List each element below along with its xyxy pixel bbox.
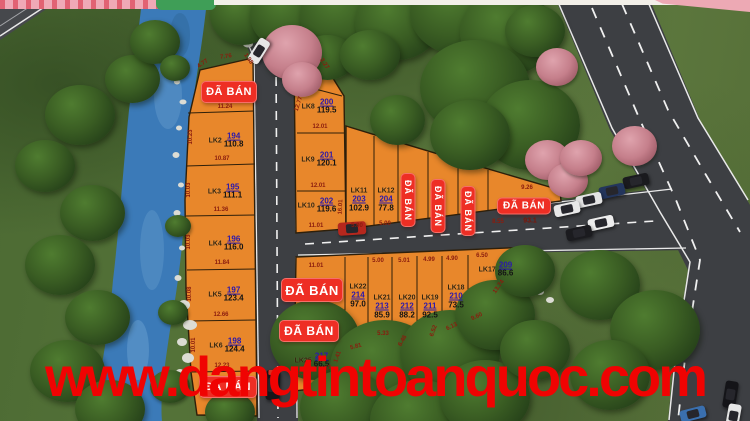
tree bbox=[25, 235, 95, 295]
dimension-label: 10.87 bbox=[214, 156, 229, 162]
sold-badge-strip-1: ĐÃ BÁN bbox=[401, 173, 416, 227]
plot-label-lk5: LK5 197123.4 bbox=[208, 287, 243, 304]
plot-label-lk19: LK1921192.5 bbox=[421, 295, 438, 320]
dimension-label: 11.24 bbox=[218, 104, 233, 110]
dimension-label: 8.55 bbox=[492, 219, 504, 225]
plot-label-lk21: LK2121385.9 bbox=[373, 295, 390, 320]
sold-badge-lower-1: ĐÃ BÁN bbox=[281, 278, 343, 302]
dimension-label: 10.03 bbox=[186, 182, 192, 197]
dimension-label: 93.1 bbox=[523, 218, 537, 225]
top-strip-pink bbox=[0, 0, 158, 9]
dimension-label: 12.01 bbox=[312, 124, 327, 130]
pink-tree bbox=[560, 140, 602, 176]
dimension-label: 5.00 bbox=[372, 258, 384, 264]
sold-badge-lk1: ĐÃ BÁN bbox=[201, 81, 257, 103]
plot-label-lk9: LK9 201120.1 bbox=[301, 152, 336, 169]
land-plot-map: ĐÃ BÁN ĐÃ BÁN ĐÃ BÁN ĐÃ BÁN ĐÃ BÁN ĐÃ BÁ… bbox=[0, 0, 750, 421]
bush bbox=[160, 55, 190, 81]
tree bbox=[370, 95, 425, 145]
dimension-label: 5.33 bbox=[377, 331, 389, 337]
dimension-label: 11.01 bbox=[309, 263, 324, 269]
dimension-label: 4.90 bbox=[446, 256, 458, 262]
sold-badge-lk16: ĐÃ BÁN bbox=[497, 198, 551, 215]
plot-label-lk8: LK8 200119.5 bbox=[302, 99, 337, 116]
bush bbox=[158, 300, 188, 325]
dimension-label: 12.66 bbox=[213, 312, 228, 318]
dimension-label: 5.01 bbox=[398, 258, 410, 264]
sold-badge-strip-3: ĐÃ BÁN bbox=[461, 186, 476, 236]
dimension-label: 10.03 bbox=[186, 234, 192, 249]
dimension-label: 6.50 bbox=[476, 253, 488, 259]
dimension-label: 16.01 bbox=[338, 199, 345, 214]
tree bbox=[430, 100, 510, 170]
tree bbox=[340, 30, 400, 80]
plot-label-lk3: LK3 195111.1 bbox=[208, 184, 242, 201]
plot-label-lk2: LK2 194110.8 bbox=[209, 133, 244, 150]
dimension-label: 5.00 bbox=[379, 221, 391, 227]
watermark-text: www.dangtintoanquoc.com bbox=[0, 349, 750, 405]
dimension-label: 10.08 bbox=[187, 286, 193, 301]
sold-badge-strip-2: ĐÃ BÁN bbox=[431, 179, 446, 233]
tree bbox=[45, 85, 115, 145]
pink-tree bbox=[282, 62, 322, 97]
plot-label-lk11: LK11203102.9 bbox=[349, 188, 369, 213]
dimension-label: 11.01 bbox=[309, 223, 324, 229]
dimension-label: 4.99 bbox=[423, 257, 435, 263]
plot-label-lk20: LK2021288.2 bbox=[398, 295, 415, 320]
tree bbox=[15, 140, 75, 192]
plot-label-lk4: LK4 196116.0 bbox=[209, 236, 244, 253]
top-strip-green bbox=[156, 0, 216, 10]
dimension-label: 10.23 bbox=[188, 129, 194, 144]
dimension-label: 11.36 bbox=[214, 207, 229, 213]
dimension-label: 11.84 bbox=[215, 260, 230, 266]
plot-label-lk18: LK1821073.5 bbox=[447, 285, 464, 310]
plot-label-lk22: LK2221497.0 bbox=[349, 284, 366, 309]
dimension-label: 5.00 bbox=[351, 223, 363, 229]
plot-label-lk17: LK17 20986.6 bbox=[479, 262, 514, 279]
car-white bbox=[725, 403, 742, 421]
tree bbox=[60, 185, 125, 241]
tree bbox=[65, 290, 130, 345]
pink-tree bbox=[612, 126, 657, 166]
dimension-label: 9.26 bbox=[521, 185, 533, 191]
pink-tree bbox=[536, 48, 578, 86]
sold-badge-lower-2: ĐÃ BÁN bbox=[279, 320, 339, 342]
plot-label-lk10: LK10 202119.6 bbox=[298, 198, 337, 215]
dimension-label: 12.01 bbox=[310, 183, 325, 189]
plot-label-lk12: LK1220477.8 bbox=[377, 188, 394, 213]
